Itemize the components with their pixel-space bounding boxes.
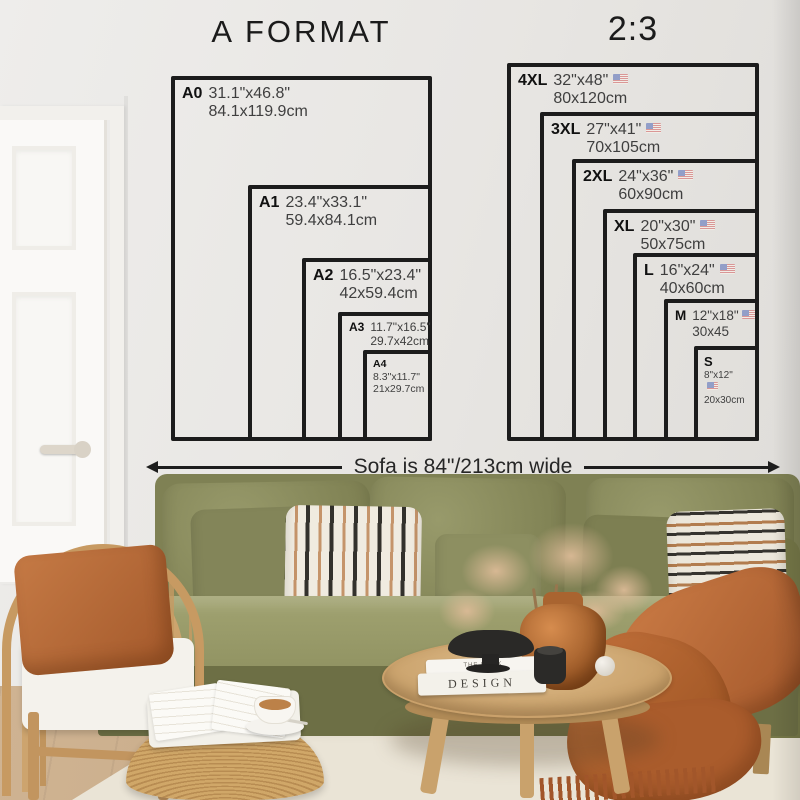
us-flag-icon: [646, 123, 661, 133]
size-rect-s: S 8"x12" 20x30cm: [694, 346, 759, 441]
size-code: A2: [313, 267, 333, 285]
a-format-title: A FORMAT: [171, 14, 432, 50]
size-cm: 40x60cm: [660, 280, 735, 298]
size-code: L: [644, 262, 654, 280]
us-flag-icon: [700, 220, 715, 230]
size-inches: 20"x30": [640, 218, 715, 236]
size-label-m: M 12"x18" 30x45: [675, 308, 755, 339]
size-code: XL: [614, 218, 634, 236]
ratio-2-3-title: 2:3: [507, 10, 759, 49]
size-code: 3XL: [551, 121, 580, 139]
size-code: M: [675, 308, 686, 324]
size-cm: 20x30cm: [704, 395, 745, 407]
size-inches: 11.7"x16.5": [370, 321, 430, 335]
us-flag-icon: [720, 264, 735, 274]
decor-sphere: [595, 656, 615, 676]
size-code: A4: [373, 358, 424, 371]
size-inches: 23.4"x33.1": [285, 194, 377, 212]
size-label-2xl: 2XL 24"x36" 60x90cm: [583, 168, 693, 205]
size-cm: 70x105cm: [586, 139, 661, 157]
sofa-width-note: Sofa is 84"/213cm wide: [354, 455, 573, 479]
size-label-a3: A3 11.7"x16.5" 29.7x42cm: [349, 321, 431, 349]
size-inches: 16"x24": [660, 262, 735, 280]
size-cm: 84.1x119.9cm: [208, 103, 307, 121]
size-code: 4XL: [518, 72, 547, 90]
size-cm: 80x120cm: [553, 90, 628, 108]
us-flag-icon: [707, 382, 718, 390]
book-spine-design: DESIGN: [418, 670, 547, 695]
coffee: [259, 699, 291, 710]
size-code: 2XL: [583, 168, 612, 186]
table-leg: [520, 712, 534, 798]
chair-leg: [28, 712, 39, 800]
door-panel-top: [12, 146, 76, 250]
arrow-line: [158, 466, 342, 469]
size-code: A3: [349, 321, 364, 335]
size-code: A1: [259, 194, 279, 212]
size-cm: 30x45: [692, 324, 754, 340]
size-inches: 31.1"x46.8": [208, 85, 307, 103]
bowl-foot: [466, 664, 510, 673]
size-inches: 27"x41": [586, 121, 661, 139]
wall-corner-shadow: [124, 96, 128, 576]
size-label-l: L 16"x24" 40x60cm: [644, 262, 735, 299]
size-label-a4: A4 8.3"x11.7" 21x29.7cm: [373, 358, 424, 396]
size-label-4xl: 4XL 32"x48" 80x120cm: [518, 72, 628, 109]
size-label-a1: A1 23.4"x33.1" 59.4x84.1cm: [259, 194, 377, 231]
door-handle-rosette: [74, 441, 91, 458]
door-panel-bottom: [12, 292, 76, 526]
size-inches: 8.3"x11.7": [373, 371, 424, 384]
size-inches: 8"x12": [704, 370, 745, 395]
size-cm: 60x90cm: [618, 186, 693, 204]
size-cm: 21x29.7cm: [373, 383, 424, 396]
size-cm: 29.7x42cm: [370, 335, 430, 349]
size-label-a2: A2 16.5"x23.4" 42x59.4cm: [313, 267, 421, 304]
wall-shade: [772, 0, 800, 800]
size-inches: 12"x18": [692, 308, 754, 324]
black-cup-rim: [537, 646, 563, 655]
poster-size-guide-mockup: THE BOOK DESIGN A FORMAT A0 31.1"x46.8" …: [0, 0, 800, 800]
size-rect-a4: A4 8.3"x11.7" 21x29.7cm: [363, 350, 432, 441]
arrow-right-icon: [768, 461, 780, 473]
size-label-s: S 8"x12" 20x30cm: [704, 354, 745, 407]
size-cm: 42x59.4cm: [339, 285, 421, 303]
rust-pillow: [13, 544, 175, 677]
arrow-line: [584, 466, 768, 469]
us-flag-icon: [678, 170, 693, 180]
size-label-xl: XL 20"x30" 50x75cm: [614, 218, 715, 255]
us-flag-icon: [742, 310, 755, 319]
size-code: A0: [182, 85, 202, 103]
us-flag-icon: [613, 74, 628, 84]
size-inches: 24"x36": [618, 168, 693, 186]
size-inches: 16.5"x23.4": [339, 267, 421, 285]
size-inches: 32"x48": [553, 72, 628, 90]
size-label-a0: A0 31.1"x46.8" 84.1x119.9cm: [182, 85, 308, 122]
size-code: S: [704, 354, 745, 370]
size-cm: 59.4x84.1cm: [285, 212, 377, 230]
size-label-3xl: 3XL 27"x41" 70x105cm: [551, 121, 661, 158]
sofa-width-arrow: Sofa is 84"/213cm wide: [146, 455, 780, 479]
arrow-left-icon: [146, 461, 158, 473]
